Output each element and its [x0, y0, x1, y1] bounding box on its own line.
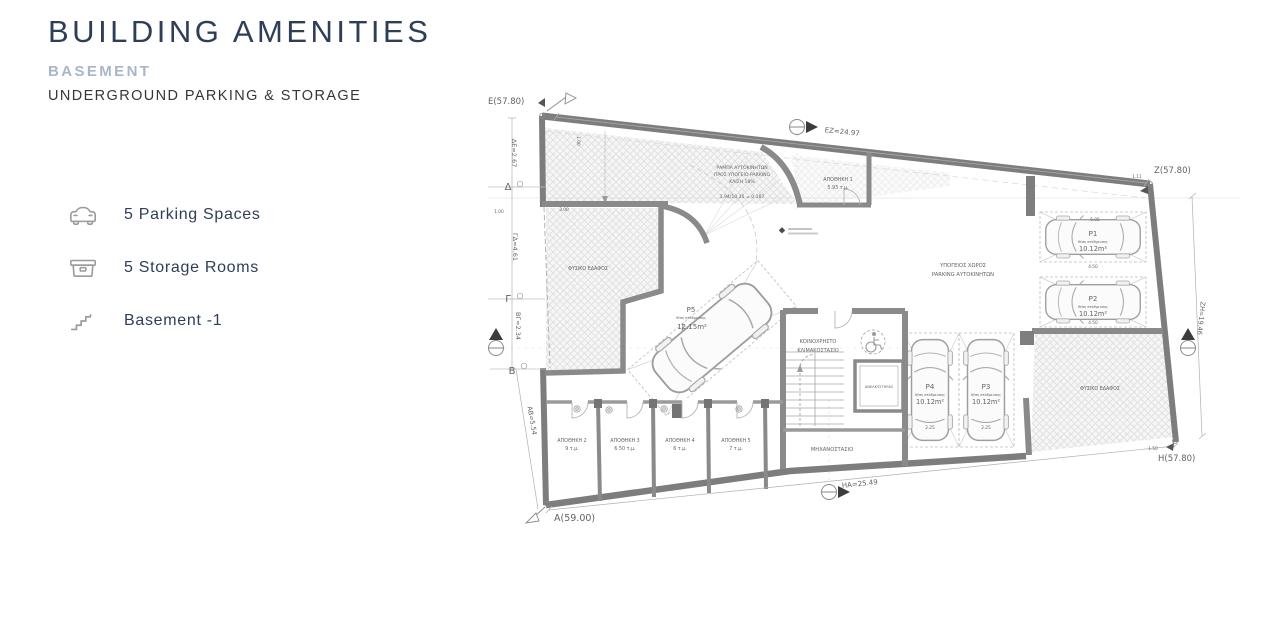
- dim-gd: ΓΔ=4.61: [511, 233, 519, 261]
- header: BUILDING AMENITIES BASEMENT UNDERGROUND …: [48, 14, 431, 104]
- parking-id: P3: [982, 383, 991, 391]
- level-mark: [779, 227, 818, 233]
- storage-area: 7 τ.μ.: [729, 446, 743, 452]
- ramp-text: ΚΛΙΣΗ 18%: [729, 179, 755, 185]
- elevator-label: ΑΝΕΛΚΥΣΤΗΡΑΣ: [865, 385, 894, 389]
- micro-dim: 1.11: [1132, 174, 1142, 180]
- stair-label: ΚΟΙΝΟΧΡΗΣΤΟ: [800, 339, 837, 345]
- dim-bg: ΒΓ=2.34: [514, 312, 522, 340]
- hall-label: PARKING ΑΥΤΟΚΙΝΗΤΩΝ: [932, 272, 994, 278]
- parking-sub: θέση στάθμευσης: [971, 393, 1001, 397]
- corner-h: H(57.80): [1158, 454, 1195, 464]
- storage-name: ΑΠΟΘΗΚΗ 5: [721, 438, 750, 444]
- dim-de: ΔΕ=2.67: [510, 139, 518, 167]
- corner-a: A(59.00): [554, 513, 595, 524]
- point-delta: Δ: [505, 182, 512, 193]
- amenities-list: 5 Parking Spaces 5 Storage Rooms Basemen…: [68, 202, 261, 361]
- parking-area: 10.12m²: [972, 398, 1000, 406]
- page-title: BUILDING AMENITIES: [48, 14, 431, 50]
- dim-ha: ΗΑ=25.49: [841, 478, 878, 490]
- stairs-icon: [68, 308, 98, 334]
- list-item: Basement -1: [68, 308, 261, 334]
- dim-zh: ΖΗ=19.46: [1195, 301, 1206, 335]
- corner-z: Z(57.80): [1154, 166, 1191, 176]
- storage-name: ΑΠΟΘΗΚΗ 1: [823, 177, 852, 183]
- elevator: ΑΝΕΛΚΥΣΤΗΡΑΣ: [855, 361, 903, 411]
- floor-plan: ΑΝΕΛΚΥΣΤΗΡΑΣ: [470, 78, 1260, 548]
- parking-area: 10.12m²: [916, 398, 944, 406]
- dim-ab: ΑΒ=5.54: [526, 406, 539, 436]
- parking-id: P5: [687, 306, 696, 314]
- micro-dim: 1.50: [1148, 446, 1158, 452]
- ramp-text: ΡΑΜΠΑ ΑΥΤΟΚΙΝΗΤΩΝ: [716, 165, 767, 171]
- page-subtitle: UNDERGROUND PARKING & STORAGE: [48, 88, 431, 104]
- corner-e: E(57.80): [488, 97, 524, 107]
- micro-dim: 5.05: [1090, 217, 1100, 223]
- storage-area: 6.50 τ.μ.: [614, 446, 635, 452]
- parking-id: P2: [1089, 295, 1098, 303]
- ground-label: ΦΥΣΙΚΟ ΕΔΑΦΟΣ: [1080, 386, 1120, 392]
- wheelchair-icon: [861, 330, 885, 354]
- parking-area: 12.15m²: [677, 323, 707, 331]
- storage-area: 5.93 τ.μ.: [827, 185, 848, 191]
- storage-area: 9 τ.μ.: [565, 446, 579, 452]
- point-gamma: Γ: [505, 294, 511, 305]
- parking-area: 10.12m²: [1079, 245, 1107, 253]
- micro-dim: 4.50: [1088, 320, 1098, 326]
- page: BUILDING AMENITIES BASEMENT UNDERGROUND …: [0, 0, 1282, 623]
- storage-name: ΑΠΟΘΗΚΗ 3: [610, 438, 639, 444]
- amenity-label: 5 Storage Rooms: [124, 259, 259, 277]
- amenity-label: 5 Parking Spaces: [124, 206, 261, 224]
- ramp-text: 1.94/10.35 = 0.187: [720, 194, 765, 200]
- stairs: [786, 352, 844, 426]
- ground-label: ΦΥΣΙΚΟ ΕΔΑΦΟΣ: [568, 266, 608, 272]
- list-item: 5 Storage Rooms: [68, 255, 261, 281]
- micro-dim: 1.00: [575, 136, 581, 146]
- hall-label: ΥΠΟΓΕΙΟΣ ΧΩΡΟΣ: [939, 263, 986, 269]
- micro-dim: 4.50: [1088, 264, 1098, 270]
- micro-dim: 2.25: [925, 425, 935, 431]
- ramp-text: ΠΡΟΣ ΥΠΟΓΕΙΟ PARKING: [714, 172, 771, 178]
- storage-name: ΑΠΟΘΗΚΗ 2: [557, 438, 586, 444]
- stair-label: ΚΛΙΜΑΚΟΣΤΑΣΙΟ: [797, 348, 838, 354]
- micro-dim: 2.25: [981, 425, 991, 431]
- amenity-label: Basement -1: [124, 312, 222, 330]
- floor-label: BASEMENT: [48, 63, 431, 80]
- point-beta: Β: [509, 366, 516, 377]
- storage-name: ΑΠΟΘΗΚΗ 4: [665, 438, 694, 444]
- car-icon: [68, 202, 98, 228]
- parking-id: P1: [1089, 230, 1098, 238]
- parking-sub: θέση στάθμευσης: [1078, 240, 1108, 244]
- parking-sub: θέση στάθμευσης: [676, 316, 706, 320]
- list-item: 5 Parking Spaces: [68, 202, 261, 228]
- machine-room-label: ΜΗΧΑΝΟΣΤΑΣΙΟ: [811, 447, 853, 453]
- storage-area: 6 τ.μ.: [673, 446, 687, 452]
- parking-sub: θέση στάθμευσης: [1078, 305, 1108, 309]
- parking-id: P4: [926, 383, 935, 391]
- micro-dim: 3.00: [559, 207, 569, 213]
- dim-ez: ΕΖ=24.97: [824, 126, 860, 138]
- parking-sub: θέση στάθμευσης: [915, 393, 945, 397]
- micro-dim: 1.00: [494, 209, 504, 215]
- storage-box-icon: [68, 255, 98, 281]
- parking-area: 10.12m²: [1079, 310, 1107, 318]
